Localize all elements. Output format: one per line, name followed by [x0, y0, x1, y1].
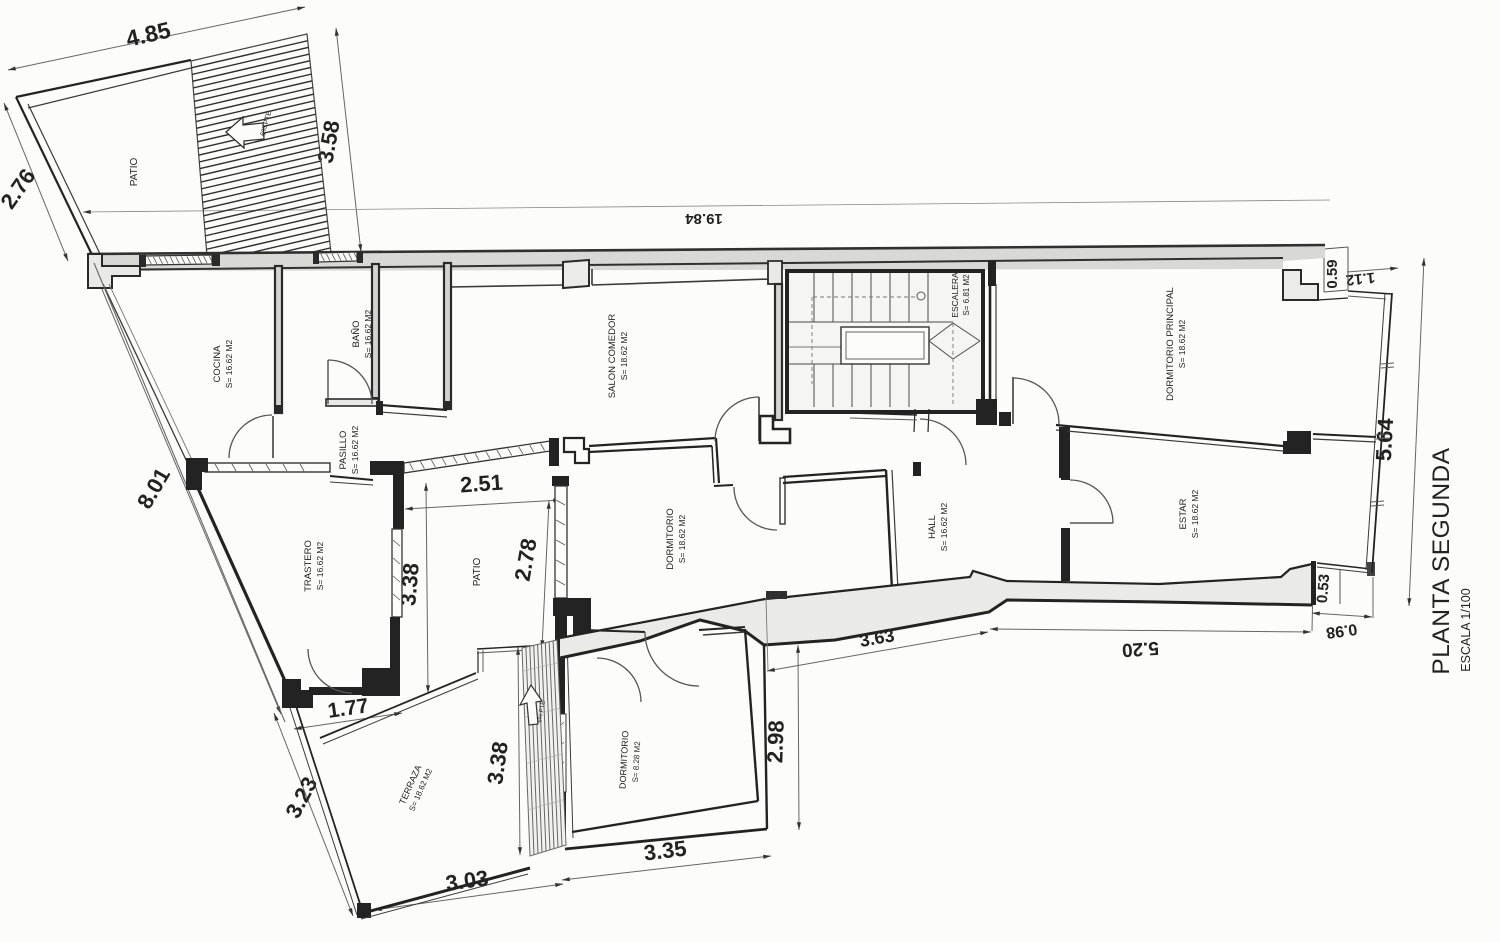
svg-text:S= 16.62 M2: S= 16.62 M2 — [939, 503, 949, 552]
svg-text:DORMITORIO: DORMITORIO — [665, 508, 676, 570]
svg-text:1.12: 1.12 — [1345, 268, 1376, 288]
svg-text:TRASTERO: TRASTERO — [303, 540, 314, 592]
svg-text:PLANTA SEGUNDA: PLANTA SEGUNDA — [1428, 447, 1455, 674]
svg-text:COCINA: COCINA — [212, 345, 223, 383]
svg-text:2.78: 2.78 — [510, 536, 542, 583]
svg-text:HALL: HALL — [927, 515, 938, 539]
svg-text:S= 16.62 M2: S= 16.62 M2 — [363, 310, 373, 359]
svg-text:8.01: 8.01 — [132, 463, 175, 513]
svg-text:ESTAR: ESTAR — [1178, 498, 1189, 529]
svg-text:3.38: 3.38 — [482, 740, 513, 786]
svg-text:S= 18.62 M2: S= 18.62 M2 — [1190, 490, 1200, 539]
svg-text:S= 16.62 M2: S= 16.62 M2 — [315, 542, 325, 591]
svg-text:DORMITORIO PRINCIPAL: DORMITORIO PRINCIPAL — [1165, 287, 1176, 401]
svg-text:19.84: 19.84 — [685, 210, 723, 227]
svg-text:S= 18.62 M2: S= 18.62 M2 — [619, 332, 629, 381]
svg-text:ESCALERA: ESCALERA — [950, 272, 960, 318]
svg-text:PASILLO: PASILLO — [338, 431, 349, 470]
svg-text:ESCALA 1/100: ESCALA 1/100 — [1459, 588, 1473, 671]
svg-text:S= 18.62 M2: S= 18.62 M2 — [677, 515, 687, 564]
svg-text:3.23: 3.23 — [280, 773, 322, 823]
svg-text:SALON COMEDOR: SALON COMEDOR — [607, 314, 618, 399]
svg-text:0.59: 0.59 — [1324, 259, 1341, 288]
svg-text:5.20: 5.20 — [1121, 637, 1159, 661]
svg-text:S= 16.62 M2: S= 16.62 M2 — [224, 340, 234, 389]
svg-text:S= 18.62 M2: S= 18.62 M2 — [1177, 320, 1187, 369]
svg-text:DORMITORIO: DORMITORIO — [617, 730, 630, 789]
svg-text:4.85: 4.85 — [123, 16, 173, 51]
svg-text:PATIO: PATIO — [129, 158, 140, 187]
svg-text:S= 6.81 M2: S= 6.81 M2 — [962, 274, 971, 316]
svg-text:2.51: 2.51 — [459, 470, 503, 498]
svg-text:S= 16.62 M2: S= 16.62 M2 — [350, 426, 360, 475]
svg-text:PATIO: PATIO — [472, 558, 483, 587]
svg-text:0.98: 0.98 — [1325, 620, 1358, 641]
svg-text:BAÑO: BAÑO — [351, 321, 362, 348]
svg-text:2.76: 2.76 — [0, 164, 40, 213]
svg-text:0.53: 0.53 — [1314, 573, 1333, 604]
svg-text:S= 8.28 M2: S= 8.28 M2 — [631, 741, 642, 783]
